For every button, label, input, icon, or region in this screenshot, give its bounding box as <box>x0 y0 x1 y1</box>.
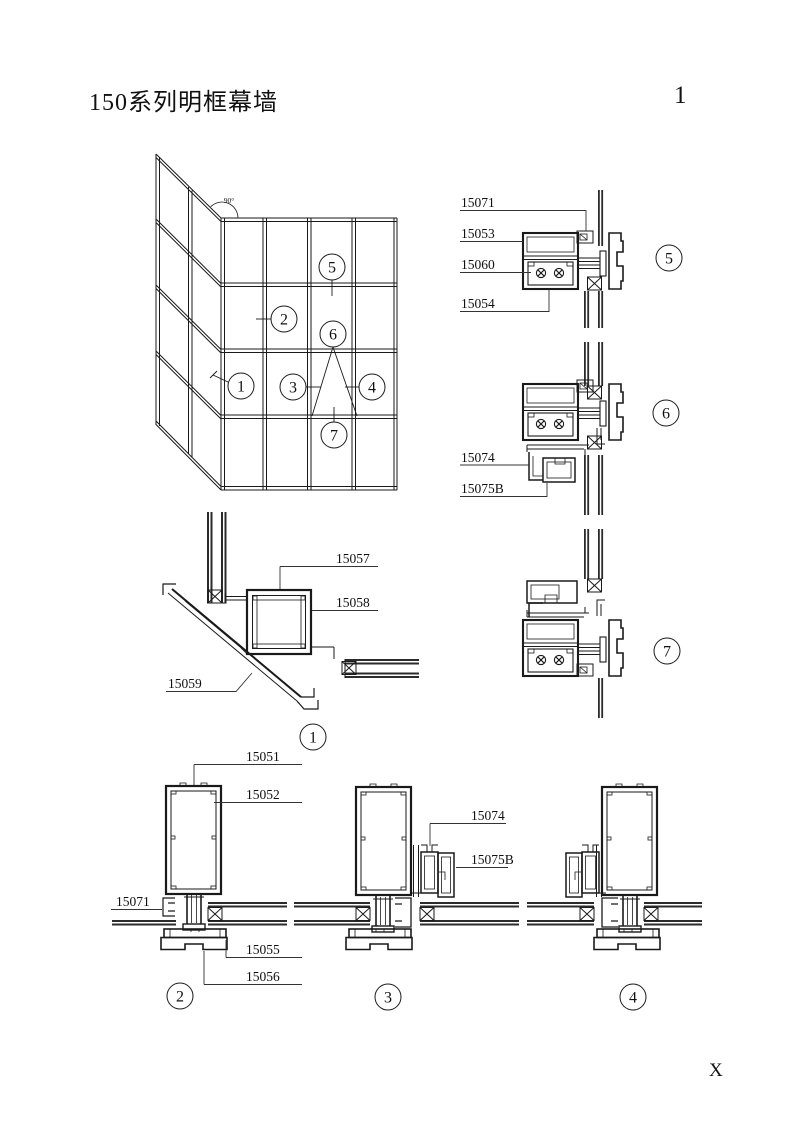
elevation-drawing: 90° 5 2 6 1 3 4 <box>156 154 397 490</box>
svg-text:2: 2 <box>280 312 288 329</box>
part-label-15051: 15051 <box>246 749 280 764</box>
vent-frame-profiles <box>410 845 454 897</box>
corner-detail-1: 15057 15058 15059 1 <box>163 512 419 750</box>
vent-frame-profiles <box>527 445 589 482</box>
part-label-15071: 15071 <box>116 894 150 909</box>
section-detail-4: 4 <box>566 784 660 1010</box>
svg-text:1: 1 <box>237 379 245 396</box>
angle-label: 90° <box>224 196 235 205</box>
part-label-15056: 15056 <box>246 969 280 984</box>
cover-cap <box>346 938 412 950</box>
part-label-15074: 15074 <box>471 808 505 823</box>
exterior-cover-cap <box>609 233 623 289</box>
glazing-bracket <box>597 600 605 616</box>
part-label-15060: 15060 <box>461 257 495 272</box>
drawing-sheet: 150系列明框幕墙 1 X <box>0 0 800 1131</box>
mullion-profile <box>166 783 221 894</box>
glazing-bracket <box>395 898 411 927</box>
pressure-plate <box>349 929 411 938</box>
svg-text:3: 3 <box>289 380 297 397</box>
section-detail-5: 15071 15053 15060 15054 5 <box>460 195 682 312</box>
part-label-15055: 15055 <box>246 942 280 957</box>
transom-profile <box>523 384 578 440</box>
corner-mark: X <box>709 1060 723 1082</box>
side-face-grid <box>156 154 221 490</box>
part-label-15057: 15057 <box>336 551 370 566</box>
transom-profile <box>523 233 578 289</box>
section-detail-2: 15051 15052 15071 15055 15056 2 <box>111 749 302 1009</box>
section-detail-3: 15074 15075B 3 <box>346 784 514 1010</box>
glass-unit <box>342 659 419 678</box>
corner-angle-annotation: 90° <box>211 196 247 218</box>
front-face-grid <box>221 218 397 490</box>
pressure-plate <box>597 929 659 938</box>
page-number: 1 <box>674 82 687 110</box>
glass-unit <box>207 512 227 603</box>
mullion-stem <box>372 895 394 932</box>
svg-text:5: 5 <box>328 260 336 277</box>
svg-text:7: 7 <box>330 428 338 445</box>
cover-cap <box>161 938 227 950</box>
svg-text:4: 4 <box>368 380 376 397</box>
exterior-cover-cap <box>609 384 623 440</box>
svg-text:3: 3 <box>384 990 392 1007</box>
part-label-15053: 15053 <box>461 226 495 241</box>
part-label-15075B: 15075B <box>461 481 504 496</box>
section-triangle <box>312 347 357 416</box>
vent-frame-profiles <box>527 581 589 617</box>
mullion-stem <box>619 895 641 932</box>
part-label-15058: 15058 <box>336 595 370 610</box>
sheet-title: 150系列明框幕墙 <box>89 82 278 117</box>
section-detail-6: 15074 15075B 6 <box>460 380 679 497</box>
fastening-clip <box>577 664 593 676</box>
svg-text:6: 6 <box>329 327 337 344</box>
svg-text:6: 6 <box>662 406 670 423</box>
exterior-cover-cap <box>609 620 623 676</box>
fastening-clip <box>577 231 593 243</box>
part-label-15054: 15054 <box>461 296 495 311</box>
glazing-bracket <box>602 898 618 927</box>
svg-text:1: 1 <box>309 730 317 747</box>
glazing-tongue <box>578 637 606 662</box>
svg-text:7: 7 <box>663 644 671 661</box>
svg-text:5: 5 <box>665 251 673 268</box>
cover-cap <box>594 938 660 950</box>
section-detail-7: 7 <box>523 581 680 676</box>
part-label-15059: 15059 <box>168 676 202 691</box>
vent-frame-profiles <box>566 845 606 897</box>
svg-text:4: 4 <box>629 990 637 1007</box>
part-label-15052: 15052 <box>246 787 280 802</box>
transom-profile <box>523 620 578 676</box>
part-label-15074: 15074 <box>461 450 495 465</box>
mullion-stem <box>183 893 205 930</box>
mullion-profile <box>356 784 411 895</box>
svg-text:2: 2 <box>176 989 184 1006</box>
glazing-clip <box>163 898 175 916</box>
part-label-15075B: 15075B <box>471 852 514 867</box>
part-label-15071: 15071 <box>461 195 495 210</box>
mullion-profile <box>602 784 657 895</box>
technical-drawing: 90° 5 2 6 1 3 4 <box>0 0 800 1131</box>
glazing-tongue <box>578 401 606 426</box>
glazing-tongue <box>578 251 606 276</box>
